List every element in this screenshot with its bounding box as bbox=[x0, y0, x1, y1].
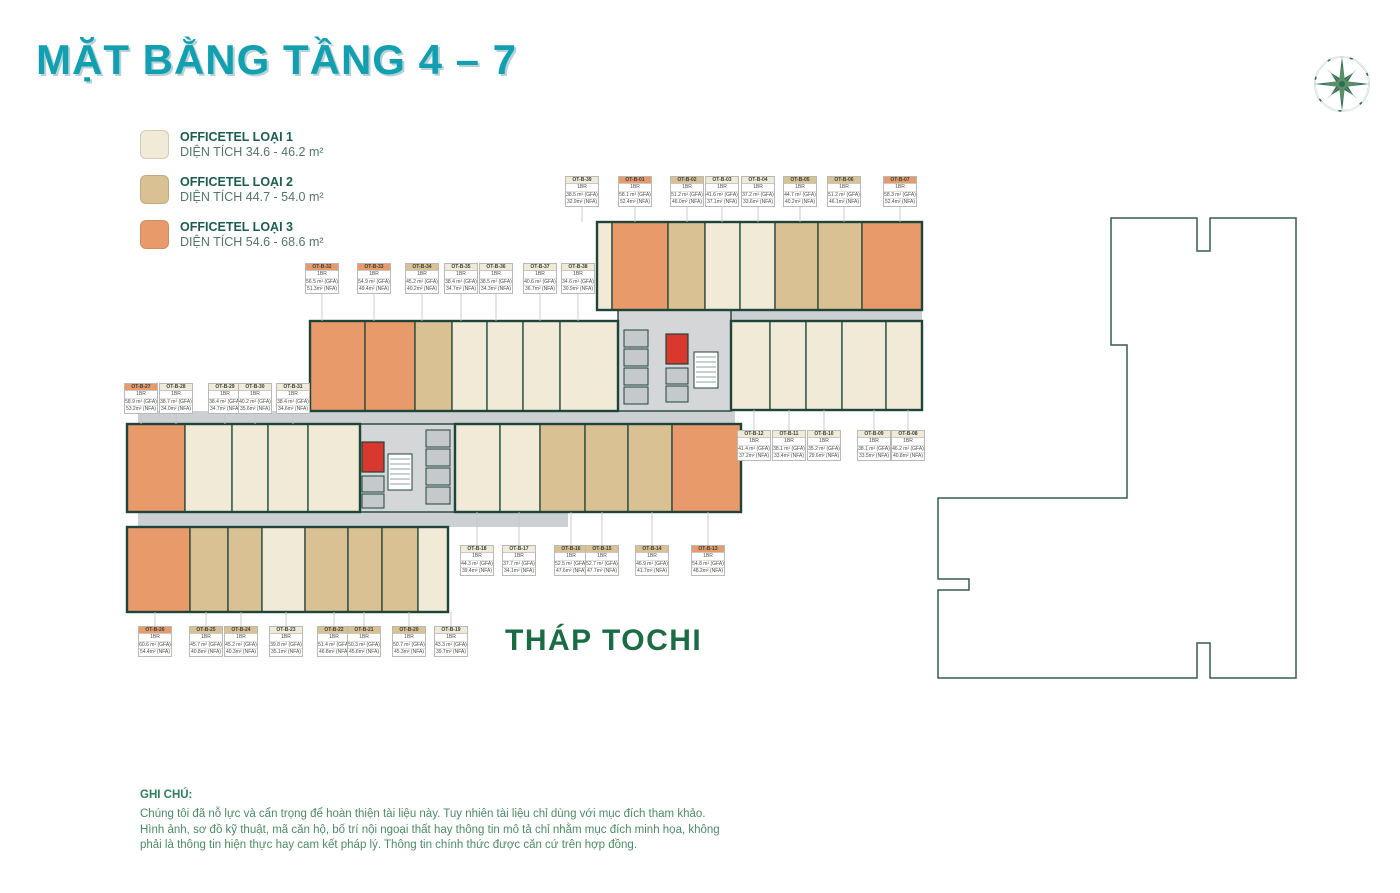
unit-room bbox=[348, 527, 382, 612]
service-cell bbox=[666, 368, 688, 384]
unit-room bbox=[365, 321, 415, 411]
unit-room bbox=[668, 222, 705, 310]
note-line: Hình ảnh, sơ đồ kỹ thuật, mã căn hộ, bố … bbox=[140, 823, 700, 839]
note-line: Chúng tôi đã nỗ lực và cẩn trọng để hoàn… bbox=[140, 807, 700, 823]
corridor bbox=[138, 411, 735, 424]
elevator-cell bbox=[426, 468, 450, 485]
compass-logo-icon bbox=[1311, 53, 1373, 115]
fire-stair-highlight bbox=[666, 334, 688, 364]
unit-room bbox=[268, 424, 308, 512]
note-line: phải là thông tin hiện thực hay cam kết … bbox=[140, 838, 700, 854]
adjacent-tower-outline bbox=[938, 218, 1296, 678]
unit-room bbox=[262, 527, 305, 612]
fire-stair-highlight bbox=[362, 442, 384, 472]
staircase bbox=[388, 454, 412, 490]
unit-room bbox=[705, 222, 740, 310]
unit-room bbox=[127, 424, 185, 512]
unit-room bbox=[455, 424, 500, 512]
unit-room bbox=[585, 424, 628, 512]
elevator-cell bbox=[624, 349, 648, 366]
note-heading: GHI CHÚ: bbox=[140, 789, 700, 801]
unit-room bbox=[305, 527, 348, 612]
unit-room bbox=[862, 222, 922, 310]
floor-plan bbox=[0, 0, 1400, 893]
service-cell bbox=[362, 476, 384, 492]
unit-room bbox=[560, 321, 618, 411]
unit-room bbox=[818, 222, 862, 310]
unit-room bbox=[500, 424, 540, 512]
unit-room bbox=[523, 321, 560, 411]
unit-room bbox=[190, 527, 228, 612]
unit-room bbox=[731, 321, 770, 410]
service-cell bbox=[666, 386, 688, 402]
note: GHI CHÚ: Chúng tôi đã nỗ lực và cẩn trọn… bbox=[140, 789, 700, 854]
unit-room bbox=[842, 321, 886, 410]
elevator-cell bbox=[426, 430, 450, 447]
unit-room bbox=[415, 321, 452, 411]
unit-room bbox=[418, 527, 448, 612]
unit-room bbox=[382, 527, 418, 612]
unit-room bbox=[310, 321, 365, 411]
staircase bbox=[694, 352, 718, 388]
unit-room bbox=[232, 424, 268, 512]
unit-room bbox=[628, 424, 672, 512]
service-cell bbox=[362, 494, 384, 508]
unit-room bbox=[806, 321, 842, 410]
corridor bbox=[138, 512, 568, 527]
unit-room bbox=[672, 424, 741, 512]
unit-room bbox=[452, 321, 487, 411]
unit-room bbox=[775, 222, 818, 310]
unit-room bbox=[770, 321, 806, 410]
elevator-cell bbox=[426, 487, 450, 504]
unit-room bbox=[487, 321, 523, 411]
elevator-cell bbox=[624, 368, 648, 385]
unit-room bbox=[597, 222, 612, 310]
unit-room bbox=[228, 527, 262, 612]
unit-room bbox=[886, 321, 922, 410]
unit-room bbox=[612, 222, 668, 310]
unit-room bbox=[185, 424, 232, 512]
unit-room bbox=[308, 424, 360, 512]
unit-room bbox=[740, 222, 775, 310]
tower-name: THÁP TOCHI bbox=[505, 624, 702, 658]
unit-room bbox=[540, 424, 585, 512]
page: MẶT BẰNG TẦNG 4 – 7 OFFICETEL LOẠI 1 DIỆ… bbox=[0, 0, 1400, 893]
unit-room bbox=[127, 527, 190, 612]
elevator-cell bbox=[426, 449, 450, 466]
elevator-cell bbox=[624, 330, 648, 347]
elevator-cell bbox=[624, 387, 648, 404]
